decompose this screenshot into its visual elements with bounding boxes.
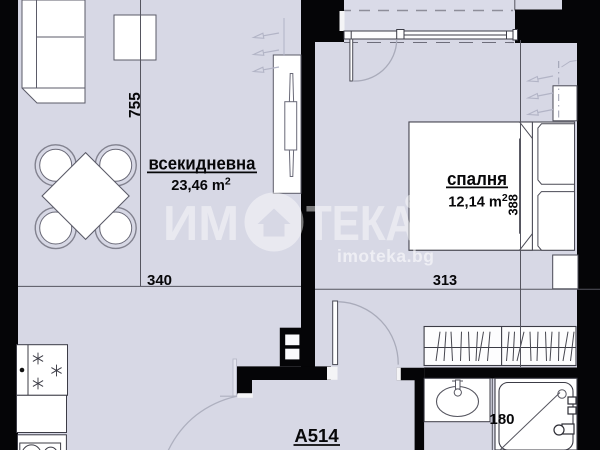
svg-text:12,14 m2: 12,14 m2 bbox=[448, 192, 508, 211]
svg-text:23,46 m2: 23,46 m2 bbox=[171, 176, 231, 195]
svg-text:ТЕКА: ТЕКА bbox=[306, 197, 416, 251]
svg-text:спалня: спалня bbox=[447, 168, 507, 189]
svg-text:180: 180 bbox=[489, 411, 514, 428]
svg-text:ИМ: ИМ bbox=[163, 197, 239, 251]
svg-text:imoteka.bg: imoteka.bg bbox=[337, 246, 434, 266]
svg-text:340: 340 bbox=[147, 272, 172, 289]
svg-text:388: 388 bbox=[506, 194, 521, 215]
svg-text:A514: A514 bbox=[294, 425, 339, 446]
svg-text:всекидневна: всекидневна bbox=[149, 153, 257, 174]
svg-text:755: 755 bbox=[127, 92, 144, 118]
svg-text:313: 313 bbox=[433, 273, 457, 289]
